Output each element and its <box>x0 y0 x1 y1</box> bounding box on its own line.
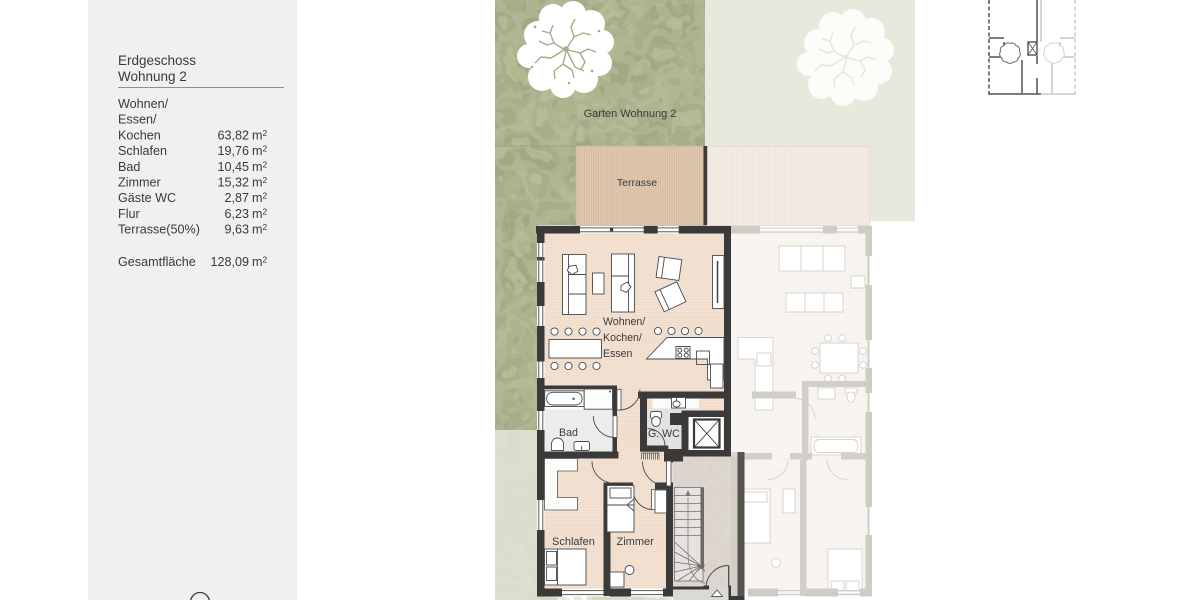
svg-text:10,45: 10,45 <box>217 160 249 174</box>
svg-text:19,76: 19,76 <box>217 144 249 158</box>
svg-text:15,32: 15,32 <box>217 176 249 190</box>
svg-text:6,23: 6,23 <box>224 207 249 221</box>
svg-text:9,63: 9,63 <box>224 223 249 237</box>
svg-text:Essen/: Essen/ <box>118 113 157 127</box>
svg-text:Garten Wohnung 2: Garten Wohnung 2 <box>584 108 677 120</box>
svg-text:Gäste WC: Gäste WC <box>118 191 176 205</box>
svg-text:Wohnen/: Wohnen/ <box>603 316 645 328</box>
svg-text:G. WC: G. WC <box>648 428 680 440</box>
svg-text:Bad: Bad <box>118 160 140 174</box>
svg-text:Kochen/: Kochen/ <box>603 332 642 344</box>
svg-text:Wohnung 2: Wohnung 2 <box>118 69 187 84</box>
svg-text:Flur: Flur <box>118 207 140 221</box>
svg-text:2,87: 2,87 <box>224 191 249 205</box>
svg-text:Wohnen/: Wohnen/ <box>118 97 169 111</box>
svg-text:Erdgeschoss: Erdgeschoss <box>118 53 196 68</box>
svg-text:Gesamtfläche: Gesamtfläche <box>118 255 196 269</box>
svg-text:Essen: Essen <box>603 348 633 360</box>
svg-text:Zimmer: Zimmer <box>118 176 161 190</box>
svg-text:Terrasse: Terrasse <box>617 177 657 189</box>
svg-text:Zimmer: Zimmer <box>617 536 655 548</box>
svg-text:Schlafen: Schlafen <box>118 144 167 158</box>
svg-text:Bad: Bad <box>559 427 578 439</box>
svg-text:128,09: 128,09 <box>210 255 249 269</box>
svg-text:Kochen: Kochen <box>118 128 161 142</box>
svg-text:Terrasse(50%): Terrasse(50%) <box>118 223 200 237</box>
svg-text:63,82: 63,82 <box>217 128 249 142</box>
svg-text:Schlafen: Schlafen <box>552 536 595 548</box>
